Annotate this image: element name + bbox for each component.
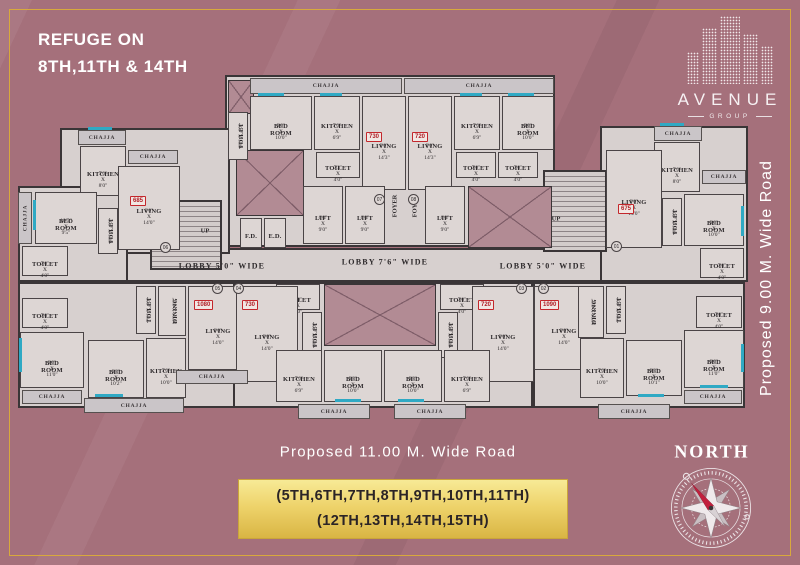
floors-banner-line-1: (5TH,6TH,7TH,8TH,9TH,10TH,11TH) — [276, 484, 529, 509]
room-bed-room: BED ROOM9'3" X 10'0" — [324, 350, 382, 402]
window-marker — [660, 123, 684, 126]
room-bed-room: BED ROOM9'3" X 10'1" — [626, 340, 682, 396]
carpet-area-badge: 730 — [242, 300, 258, 310]
floor-plan-page: REFUGE ON 8TH,11TH & 14TH AVENUE GROUP P… — [0, 0, 800, 565]
chajja-label: CHAJJA — [140, 154, 167, 160]
room-dining: DINING10'3" X 8'0" — [158, 286, 186, 336]
room-dimensions: 9'0" X 11'0" — [708, 359, 719, 377]
room-dimensions: 9'0" X 10'0" — [275, 123, 286, 141]
refuge-line-1: REFUGE ON — [38, 26, 188, 53]
room-toilet: TOILET7'0" X 4'0" — [136, 286, 156, 334]
room-bed-room: BED ROOM9'0" X 11'0" — [20, 332, 84, 388]
room-living: LIVING9'0" X 14'0" — [606, 150, 662, 248]
flat-number-badge: 08 — [408, 194, 419, 205]
chajja-label: CHAJJA — [711, 174, 738, 180]
room-dimensions: 7'0" X 4'0" — [146, 298, 152, 322]
room-f-d: F.D. — [240, 218, 262, 248]
room-dimensions: 9'0" X 11'0" — [46, 360, 57, 378]
room-name: E.D. — [268, 233, 281, 240]
room-kitchen: KITCHEN7'0" X 10'0" — [580, 338, 624, 398]
carpet-area-badge: 730 — [366, 132, 382, 142]
flat-number-badge: 05 — [212, 283, 223, 294]
window-marker — [19, 338, 22, 372]
room-dimensions: 9'3" X 10'0" — [347, 376, 358, 394]
room-kitchen: KITCHEN7'0" X 10'0" — [146, 338, 186, 398]
chajja-label: CHAJJA — [417, 409, 444, 415]
carpet-area-badge: 1080 — [194, 300, 213, 310]
room-toilet: TOILET6'0" X 4'0" — [662, 198, 682, 246]
room-kitchen: KITCHEN7'0" X 6'9" — [314, 96, 360, 150]
chajja-label: CHAJJA — [89, 135, 116, 141]
room-toilet: TOILET7'0" X 4'0" — [22, 298, 68, 328]
carpet-area-badge: 720 — [412, 132, 428, 142]
chajja-strip: CHAJJA — [250, 78, 402, 94]
room-toilet: TOILET7'3" X 4'0" — [316, 152, 360, 178]
chajja-label: CHAJJA — [22, 205, 28, 232]
room-dimensions: 7'0" X 6'9" — [333, 123, 342, 141]
chajja-label: CHAJJA — [313, 83, 340, 89]
road-label-bottom: Proposed 11.00 M. Wide Road — [280, 444, 516, 461]
floors-banner-line-2: (12TH,13TH,14TH,15TH) — [317, 509, 489, 534]
staircase — [543, 170, 607, 252]
chajja-strip: CHAJJA — [176, 370, 248, 384]
room-living: LIVING9'0" X 14'3" — [362, 96, 406, 190]
chajja-label: CHAJJA — [121, 403, 148, 409]
room-dimensions: 9'0" X 14'0" — [558, 328, 569, 346]
room-dimensions: 9'0" X 14'0" — [497, 334, 508, 352]
room-dimensions: 6'0" X 9'0" — [441, 215, 450, 233]
carpet-area-badge: 675 — [618, 204, 634, 214]
room-dimensions: 9'0" X 14'3" — [378, 143, 389, 161]
room-dimensions: 10'3" X 8'0" — [591, 299, 597, 326]
window-marker — [320, 93, 342, 96]
window-marker — [741, 344, 744, 372]
chajja-strip: CHAJJA — [84, 398, 184, 413]
room-name: F.D. — [245, 233, 257, 240]
room-dimensions: 9'0" X 14'0" — [143, 208, 154, 226]
room-dimensions: 7'0" X 4'0" — [472, 165, 481, 183]
flat-number-badge: 07 — [374, 194, 385, 205]
room-dimensions: 7'0" X 4'0" — [514, 165, 523, 183]
room-dimensions: 9'3" X 10'2" — [110, 369, 121, 387]
room-lift: LIFT6'0" X 9'0" — [303, 186, 343, 244]
refuge-line-2: 8TH,11TH & 14TH — [38, 53, 188, 80]
window-marker — [638, 394, 664, 397]
room-bed-room: BED ROOM10'5" X 9'5" — [35, 192, 97, 244]
chajja-label: CHAJJA — [621, 409, 648, 415]
floors-banner: (5TH,6TH,7TH,8TH,9TH,10TH,11TH) (12TH,13… — [238, 479, 568, 539]
road-label-right: Proposed 9.00 M. Wide Road — [758, 160, 776, 396]
room-dimensions: 7'0" X 10'0" — [160, 368, 171, 386]
compass-icon — [667, 464, 755, 552]
chajja-strip: CHAJJA — [18, 192, 32, 244]
avenue-group-logo: AVENUE GROUP — [668, 12, 792, 120]
room-bed-room: BED ROOM9'3" X 10'0" — [384, 350, 442, 402]
chajja-label: CHAJJA — [321, 409, 348, 415]
room-dimensions: 6'0" X 4'0" — [672, 210, 678, 234]
window-marker — [88, 127, 112, 130]
room-dimensions: 6'0" X 4'0" — [448, 323, 454, 347]
room-dimensions: 7'0" X 6'9" — [295, 376, 304, 394]
refuge-note: REFUGE ON 8TH,11TH & 14TH — [38, 26, 188, 80]
lobby-label: LOBBY 5'0" WIDE — [179, 262, 265, 271]
carpet-area-badge: 1090 — [540, 300, 559, 310]
room-bed-room: BED ROOM9'0" X 10'0" — [684, 194, 744, 246]
room-toilet: TOILET7'0" X 4'0" — [22, 246, 68, 276]
room-toilet: TOILET7'0" X 4'0" — [606, 286, 626, 334]
chajja-label: CHAJJA — [39, 394, 66, 400]
room-lift: LIFT6'0" X 9'0" — [425, 186, 465, 244]
chajja-strip: CHAJJA — [684, 390, 742, 404]
room-bed-room: BED ROOM9'0" X 10'0" — [250, 96, 312, 150]
plan-label-up: UP — [201, 228, 210, 235]
room-toilet: TOILET7'0" X 4'0" — [498, 152, 538, 178]
window-marker — [741, 206, 744, 236]
room-dimensions: 6'0" X 4'0" — [238, 124, 244, 148]
room-dimensions: 9'0" X 10'0" — [522, 123, 533, 141]
plan-label-up: UP — [552, 216, 561, 223]
flat-number-badge: 03 — [516, 283, 527, 294]
room-dimensions: 7'0" X 6'9" — [463, 376, 472, 394]
chajja-strip: CHAJJA — [128, 150, 178, 164]
window-marker — [508, 93, 534, 96]
window-marker — [95, 394, 123, 397]
room-dimensions: 7'0" X 8'0" — [99, 171, 108, 189]
window-marker — [460, 93, 482, 96]
room-dimensions: 7'0" X 4'0" — [458, 297, 467, 315]
room-dimensions: 7'0" X 4'0" — [41, 261, 50, 279]
room-dimensions: 9'0" X 14'0" — [261, 334, 272, 352]
room-toilet: TOILET7'0" X 4'0" — [696, 296, 742, 328]
room-living: LIVING9'0" X 14'3" — [408, 96, 452, 190]
plan-label-foyer: FOYER — [392, 195, 399, 218]
chajja-label: CHAJJA — [466, 83, 493, 89]
logo-subtitle: GROUP — [668, 113, 792, 120]
window-marker — [258, 93, 284, 96]
window-marker — [700, 385, 728, 388]
room-dimensions: 6'0" X 4'0" — [108, 219, 114, 243]
room-bed-room: BED ROOM9'0" X 10'0" — [502, 96, 554, 150]
flat-number-badge: 06 — [160, 242, 171, 253]
skyline-logo-icon — [668, 12, 792, 84]
room-kitchen: KITCHEN7'0" X 6'9" — [276, 350, 322, 402]
flat-number-badge: 04 — [233, 283, 244, 294]
room-dimensions: 10'5" X 9'5" — [60, 218, 72, 236]
chajja-strip: CHAJJA — [22, 390, 82, 404]
lobby-label: LOBBY 7'6" WIDE — [342, 258, 428, 267]
room-e-d: E.D. — [264, 218, 286, 248]
room-dimensions: 9'0" X 14'3" — [424, 143, 435, 161]
room-dimensions: 7'0" X 4'0" — [718, 263, 727, 281]
duct-shaft — [324, 284, 436, 346]
window-marker — [398, 399, 424, 402]
chajja-strip: CHAJJA — [404, 78, 554, 94]
chajja-label: CHAJJA — [700, 394, 727, 400]
room-dimensions: 9'3" X 10'0" — [407, 376, 418, 394]
chajja-label: CHAJJA — [665, 131, 692, 137]
window-marker — [33, 200, 36, 230]
duct-shaft — [468, 186, 552, 248]
room-dimensions: 9'3" X 10'1" — [648, 368, 659, 386]
room-toilet: TOILET7'0" X 4'0" — [456, 152, 496, 178]
room-dimensions: 7'0" X 6'9" — [473, 123, 482, 141]
room-bed-room: BED ROOM9'3" X 10'2" — [88, 340, 144, 398]
room-toilet: TOILET6'0" X 4'0" — [228, 112, 248, 160]
north-label: NORTH — [674, 442, 749, 463]
lobby-label: LOBBY 5'0" WIDE — [500, 262, 586, 271]
room-dimensions: 7'0" X 4'0" — [616, 298, 622, 322]
room-dimensions: 10'3" X 8'0" — [172, 298, 178, 325]
room-dimensions: 9'0" X 14'0" — [212, 328, 223, 346]
room-kitchen: KITCHEN7'0" X 6'9" — [454, 96, 500, 150]
room-dimensions: 7'0" X 8'0" — [673, 167, 682, 185]
room-dimensions: 9'0" X 10'0" — [708, 220, 719, 238]
chajja-label: CHAJJA — [199, 374, 226, 380]
room-dimensions: 6'0" X 9'0" — [361, 215, 370, 233]
chajja-strip: CHAJJA — [78, 130, 126, 145]
room-dimensions: 7'0" X 4'0" — [715, 312, 724, 330]
room-toilet: TOILET6'0" X 4'0" — [98, 208, 118, 254]
chajja-strip: CHAJJA — [298, 404, 370, 419]
carpet-area-badge: 720 — [478, 300, 494, 310]
room-kitchen: KITCHEN7'0" X 6'9" — [444, 350, 490, 402]
chajja-strip: CHAJJA — [598, 404, 670, 419]
room-toilet: TOILET7'0" X 4'0" — [700, 248, 744, 278]
room-living: LIVING9'0" X 14'0" — [118, 166, 180, 250]
chajja-strip: CHAJJA — [702, 170, 746, 184]
flat-number-badge: 01 — [611, 241, 622, 252]
room-bed-room: BED ROOM9'0" X 11'0" — [684, 330, 744, 388]
logo-sub-text: GROUP — [709, 113, 750, 120]
window-marker — [335, 399, 361, 402]
carpet-area-badge: 685 — [130, 196, 146, 206]
flat-number-badge: 02 — [538, 283, 549, 294]
room-dimensions: 7'0" X 10'0" — [596, 368, 607, 386]
room-dimensions: 7'3" X 4'0" — [334, 165, 343, 183]
room-dimensions: 6'0" X 4'0" — [312, 323, 318, 347]
room-dining: DINING10'3" X 8'0" — [578, 286, 604, 338]
chajja-strip: CHAJJA — [394, 404, 466, 419]
chajja-strip: CHAJJA — [654, 126, 702, 141]
room-dimensions: 6'0" X 9'0" — [319, 215, 328, 233]
logo-name: AVENUE — [668, 90, 792, 110]
room-dimensions: 7'0" X 4'0" — [41, 313, 50, 331]
